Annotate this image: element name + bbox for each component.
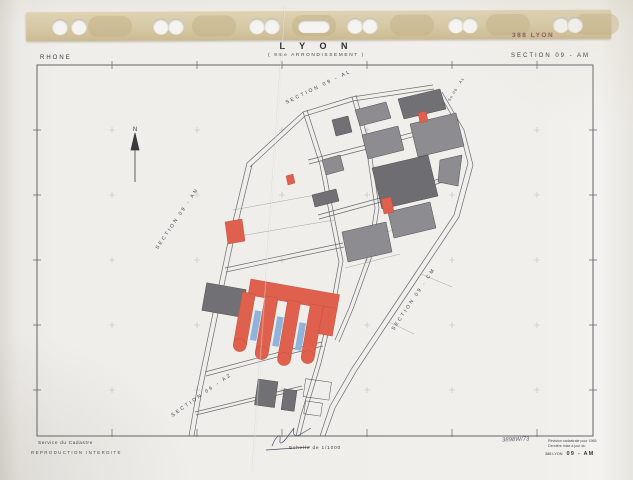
sheet-reference-commune: 388 LYON	[545, 452, 562, 456]
revision-notes: Révision cadastrale pour 1965 Dernière m…	[548, 439, 597, 449]
cadastral-map: N	[0, 0, 633, 480]
handwritten-reference: 3898W/73	[502, 437, 530, 444]
south-buildings	[254, 372, 331, 417]
north-arrow-icon	[131, 133, 139, 182]
sheet-reference-section: 09 - AM	[566, 451, 594, 457]
revision-line2: Dernière mise à jour du	[548, 444, 597, 449]
scanned-cadastral-sheet: 388 LYON RHONE L Y O N ( 9me ARRONDISSEM…	[0, 0, 633, 480]
service-label: Service du Cadastre	[38, 441, 93, 446]
sheet-reference: 388 LYON09 - AM	[545, 451, 595, 457]
reproduction-notice: REPRODUCTION INTERDITE	[31, 450, 122, 455]
red-comb-building	[231, 278, 339, 373]
north-label: N	[133, 127, 137, 133]
scale-label: Echelle de 1/1000	[289, 446, 341, 451]
map-frame	[37, 65, 593, 436]
building-blocks	[312, 89, 464, 262]
